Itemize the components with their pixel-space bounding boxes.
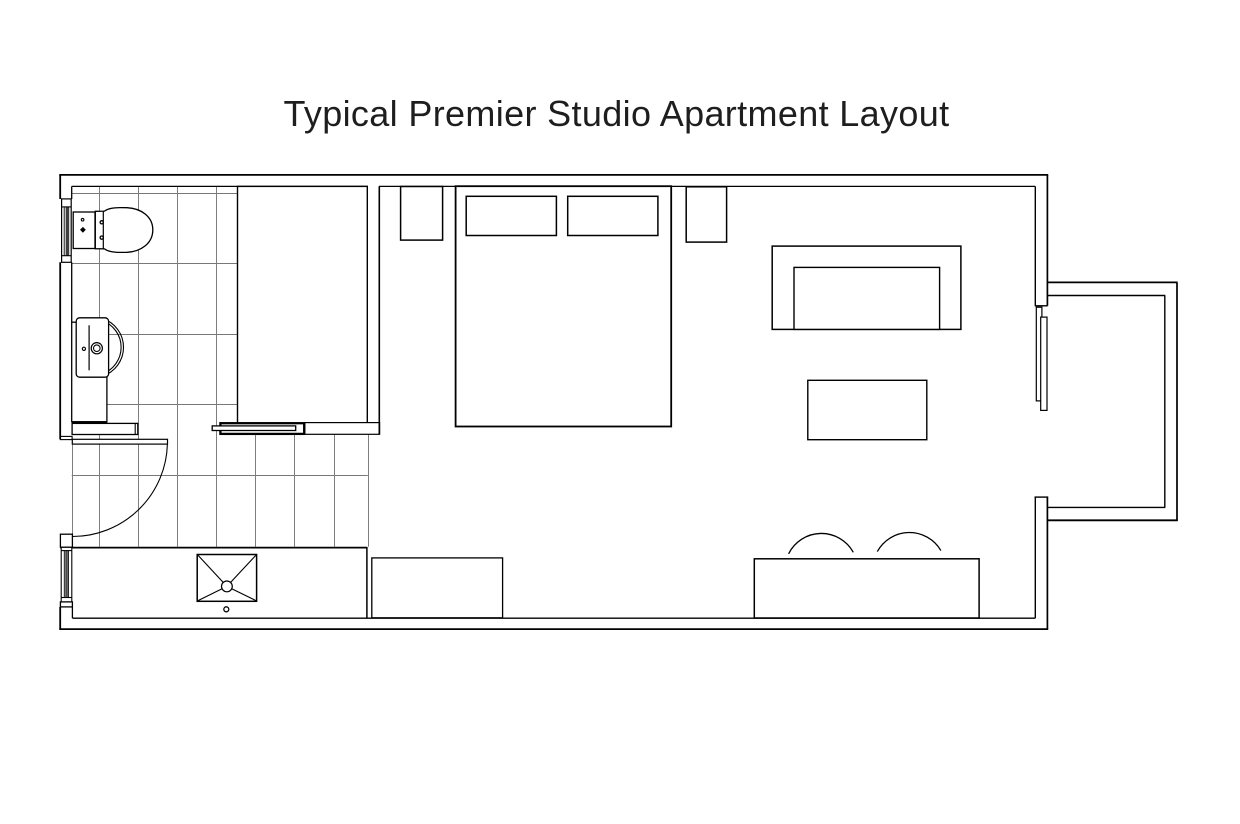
svg-text:Typical Premier Studio Apartme: Typical Premier Studio Apartment Layout (284, 93, 950, 134)
